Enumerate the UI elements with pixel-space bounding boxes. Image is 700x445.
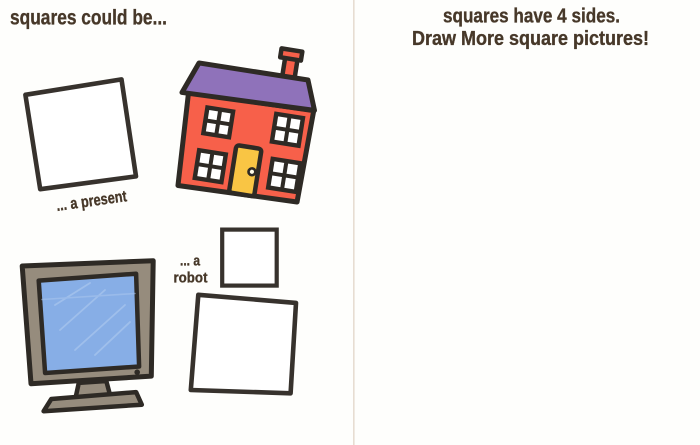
svg-text:... a: ... a [180,254,201,270]
svg-text:Draw More square pictures!: Draw More square pictures! [412,28,649,50]
svg-text:squares could be...: squares could be... [10,6,167,29]
svg-text:squares have 4 sides.: squares have 4 sides. [443,6,620,28]
svg-text:robot: robot [174,271,208,287]
